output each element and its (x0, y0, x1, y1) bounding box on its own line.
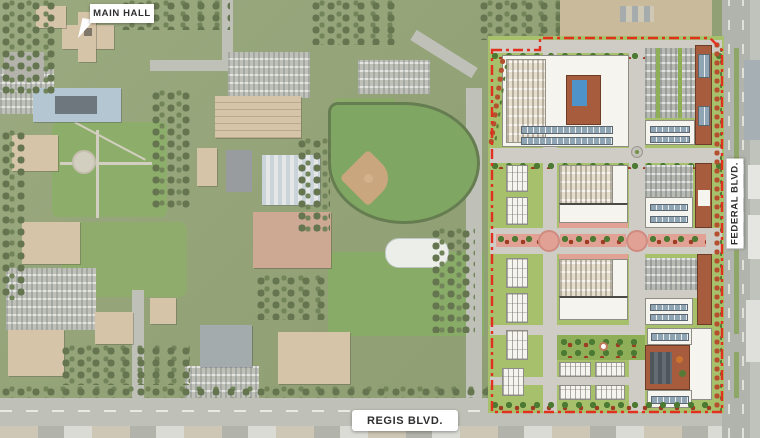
townhouse-row (559, 362, 591, 377)
park-circle-feature (599, 342, 608, 351)
amenity-courtyard (645, 345, 690, 390)
solar-roof (650, 216, 688, 223)
solar-roof (521, 126, 613, 134)
parking-island (656, 48, 660, 118)
building-wing (559, 203, 628, 223)
townhouse-row (595, 362, 625, 377)
apartment-block-2 (557, 163, 629, 228)
main-hall-label-text: MAIN HALL (93, 8, 151, 19)
townhouse-cluster (506, 293, 528, 323)
federal-frontage-building (695, 45, 712, 145)
surface-parking-lot (645, 165, 693, 197)
townhouse-cluster (506, 258, 528, 288)
central-park (557, 335, 645, 360)
solar-roof (650, 314, 688, 321)
building-wing (612, 259, 628, 299)
solar-roof (650, 126, 690, 133)
townhouse-cluster (506, 197, 528, 225)
building-wing (698, 190, 710, 206)
townhouse-cluster (506, 165, 528, 192)
parking-island (678, 48, 682, 118)
solar-roof (650, 304, 688, 311)
paseo-paving (559, 223, 628, 228)
regis-edge-planting (490, 400, 712, 412)
federal-blvd-label: FEDERAL BLVD. (727, 159, 744, 249)
townhouse-cluster (506, 330, 528, 360)
townhouse-row (559, 385, 591, 400)
amenity-deck (650, 352, 672, 384)
roundabout-center (635, 150, 639, 154)
paseo-median (496, 234, 540, 247)
regis-blvd-label: REGIS BLVD. (352, 410, 458, 431)
federal-blvd-label-text: FEDERAL BLVD. (730, 162, 741, 245)
regis-blvd-label-text: REGIS BLVD. (367, 415, 443, 427)
paseo-median (560, 234, 626, 247)
map-canvas: MAIN HALL FEDERAL BLVD. REGIS BLVD. (0, 0, 760, 438)
paseo-plaza-circle (626, 230, 648, 252)
apartment-block-1 (502, 55, 629, 147)
apartment-building (645, 197, 693, 228)
courtyard-tree (679, 370, 686, 377)
solar-roof (521, 137, 613, 145)
apartment-block-3 (557, 254, 629, 325)
surface-parking-lot (645, 48, 697, 118)
federal-edge-planting (712, 40, 722, 412)
solar-roof (698, 106, 710, 126)
solar-roof (650, 204, 688, 211)
surface-parking-lot (645, 258, 697, 290)
courtyard-tree (676, 356, 683, 363)
main-hall-label: MAIN HALL (90, 4, 154, 23)
paseo-plaza-circle (538, 230, 560, 252)
site-plan (488, 36, 724, 413)
building-wing (559, 296, 628, 320)
apartment-building (645, 120, 695, 145)
federal-frontage-building (695, 163, 712, 228)
townhouse-row (595, 385, 625, 400)
paseo-median (648, 234, 706, 247)
courtyard-complex-wing (647, 328, 692, 345)
apartment-building (645, 298, 693, 325)
solar-roof (650, 136, 690, 143)
swimming-pool (572, 80, 587, 106)
townhouse-cluster (502, 368, 524, 396)
federal-frontage-building (697, 254, 712, 325)
courtyard-building (566, 75, 601, 125)
solar-roof (651, 333, 689, 341)
solar-roof (698, 54, 710, 78)
